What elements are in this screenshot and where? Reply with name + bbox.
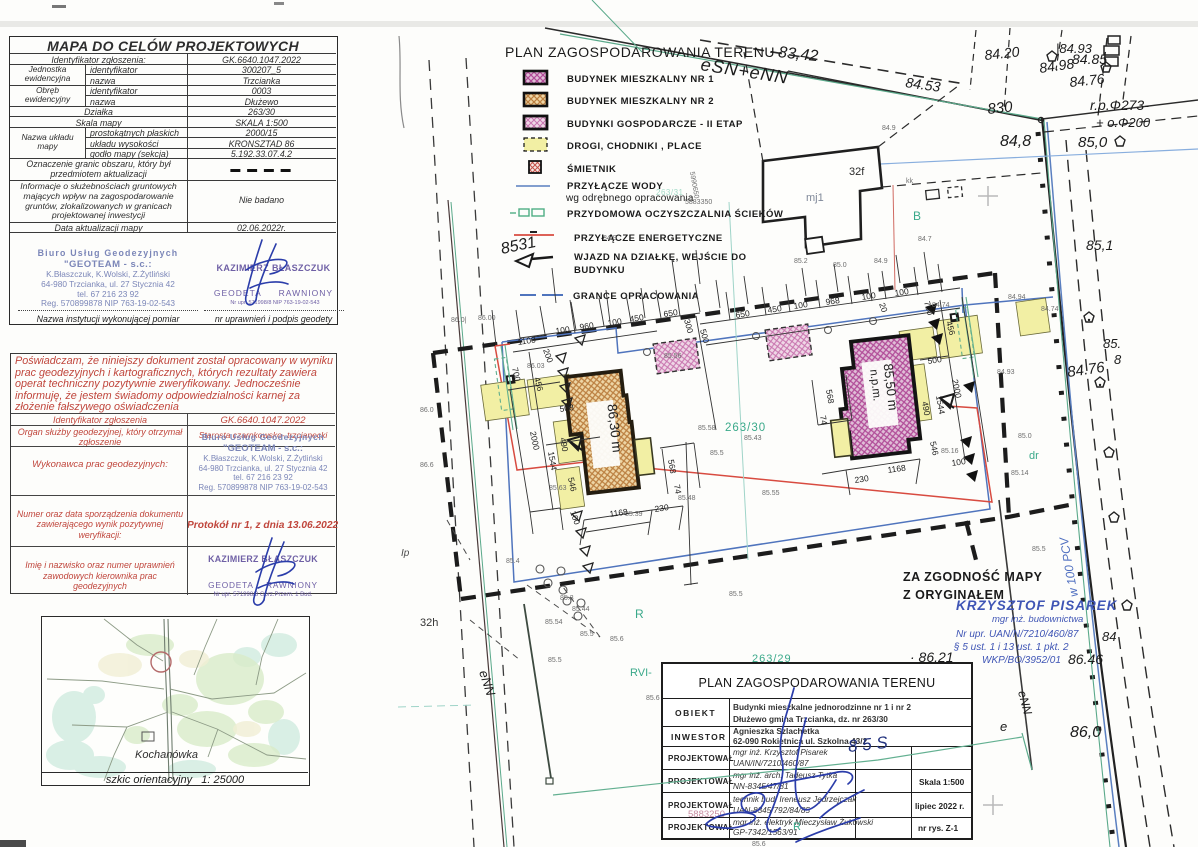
svg-text:ZA ZGODNOŚĆ MAPY: ZA ZGODNOŚĆ MAPY xyxy=(903,569,1043,584)
svg-text:5883250: 5883250 xyxy=(688,809,725,820)
svg-text:Nr upr. UAN/N/7210/460/87: Nr upr. UAN/N/7210/460/87 xyxy=(956,629,1079,640)
svg-text:§ 5 ust. 1 i 13 ust. 1 pkt. 2: § 5 ust. 1 i 13 ust. 1 pkt. 2 xyxy=(953,642,1069,653)
svg-text:8 5 S: 8 5 S xyxy=(847,733,889,756)
svg-text:w 100 PCV: w 100 PCV xyxy=(1057,535,1081,598)
svg-text:WKP/BO/3952/01: WKP/BO/3952/01 xyxy=(982,655,1061,666)
svg-text:R: R xyxy=(793,821,801,833)
svg-text:mgr inż. budownictwa: mgr inż. budownictwa xyxy=(992,614,1083,625)
svg-text:KRZYSZTOF PISAREK: KRZYSZTOF PISAREK xyxy=(956,598,1118,613)
svg-text:· 86.21: · 86.21 xyxy=(910,649,954,665)
